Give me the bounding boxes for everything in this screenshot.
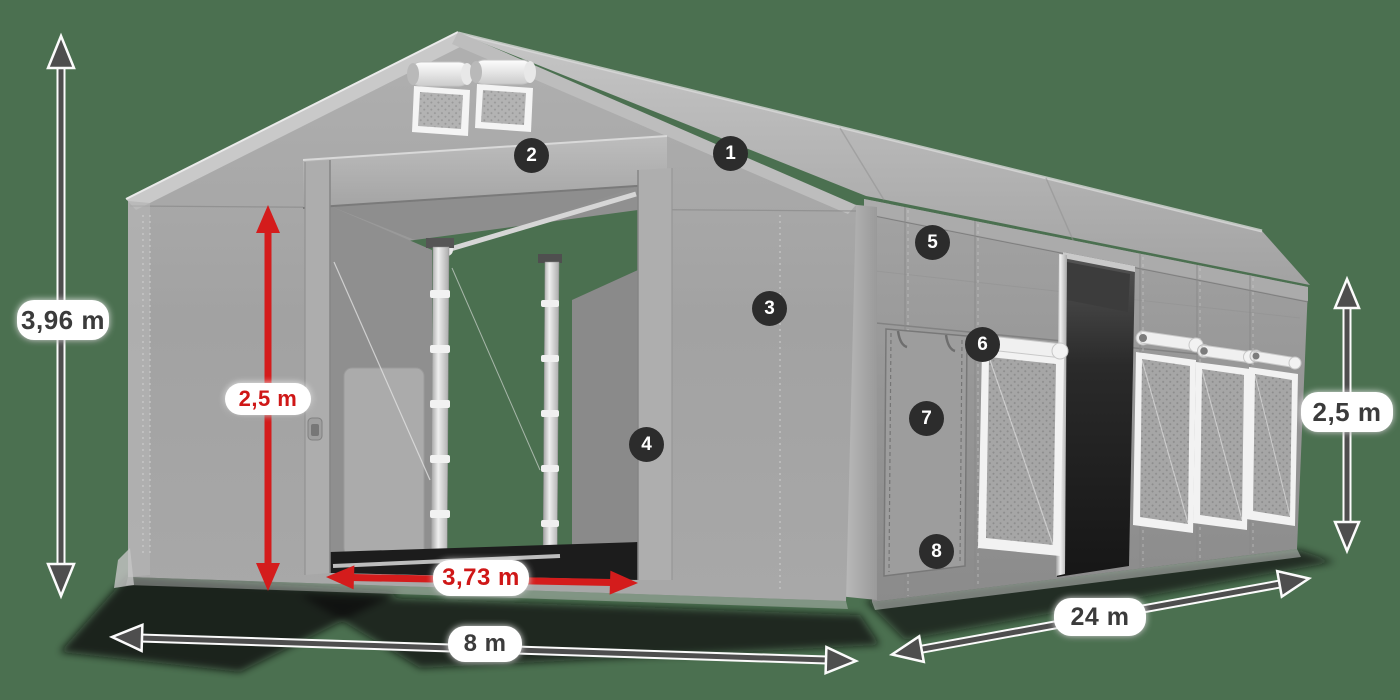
callout-badge-7: 7 xyxy=(909,401,944,436)
callout-badge-5: 5 xyxy=(915,225,950,260)
gable-vent-left xyxy=(407,62,473,136)
dimension-label-side-height: 2,5 m xyxy=(1301,392,1393,432)
dimension-label-entrance-width: 3,73 m xyxy=(433,560,529,596)
callout-badge-3: 3 xyxy=(752,291,787,326)
dimension-label-entrance-height: 2,5 m xyxy=(225,383,311,415)
entrance-jamb-right xyxy=(638,168,672,580)
callout-badge-6: 6 xyxy=(965,327,1000,362)
dimension-label-side-length: 24 m xyxy=(1054,598,1146,636)
side-window-4 xyxy=(1246,350,1301,526)
dimension-label-total-height: 3,96 m xyxy=(17,300,109,340)
product-diagram: 3,96 m 2,5 m 3,73 m 8 m 24 m 2,5 m 1 2 3… xyxy=(0,0,1400,700)
dimension-label-front-width: 8 m xyxy=(448,626,522,662)
callout-badge-1: 1 xyxy=(713,136,748,171)
corner-left xyxy=(128,201,150,577)
interior-pole xyxy=(538,254,562,574)
callout-badge-4: 4 xyxy=(629,427,664,462)
callout-badge-8: 8 xyxy=(919,534,954,569)
tent-illustration xyxy=(0,0,1400,700)
entrance-interior xyxy=(325,180,645,585)
entrance-jamb-left xyxy=(305,160,330,575)
side-window-2 xyxy=(1133,331,1203,533)
side-window-1 xyxy=(978,335,1068,556)
side-door-opening xyxy=(1056,252,1135,577)
callout-badge-2: 2 xyxy=(514,138,549,173)
gable-vent-right xyxy=(470,60,536,132)
